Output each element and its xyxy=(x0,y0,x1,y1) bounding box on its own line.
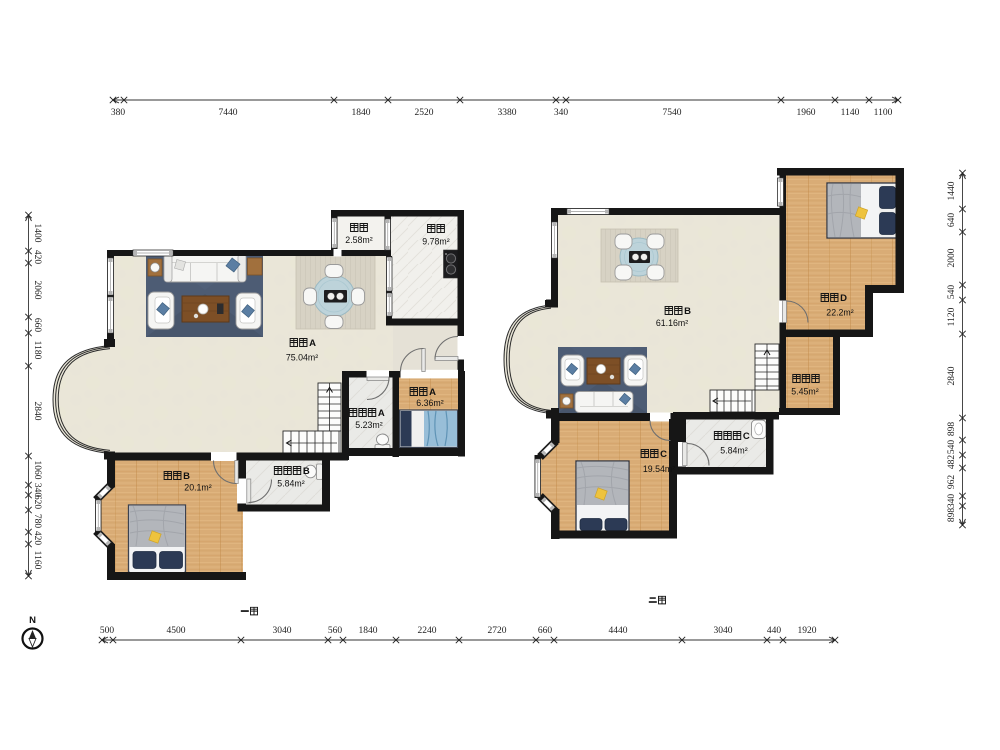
svg-text:420: 420 xyxy=(32,250,42,265)
svg-text:898: 898 xyxy=(947,508,957,523)
svg-text:482: 482 xyxy=(947,455,957,470)
svg-text:75.04m²: 75.04m² xyxy=(286,353,318,363)
svg-text:2720: 2720 xyxy=(488,626,507,636)
svg-text:340: 340 xyxy=(947,494,957,509)
svg-text:1960: 1960 xyxy=(797,108,816,118)
svg-text:6.36m²: 6.36m² xyxy=(416,398,443,408)
svg-text:61.16m²: 61.16m² xyxy=(656,318,688,328)
svg-text:1920: 1920 xyxy=(798,626,817,636)
svg-text:A: A xyxy=(309,338,316,349)
svg-text:3380: 3380 xyxy=(498,108,517,118)
svg-text:D: D xyxy=(840,293,847,304)
svg-text:4500: 4500 xyxy=(167,626,186,636)
svg-text:5.23m²: 5.23m² xyxy=(355,420,382,430)
svg-text:420: 420 xyxy=(32,531,42,546)
svg-text:500: 500 xyxy=(100,626,115,636)
svg-text:1840: 1840 xyxy=(359,626,378,636)
svg-text:22.2m²: 22.2m² xyxy=(826,308,853,318)
svg-text:1140: 1140 xyxy=(841,108,860,118)
svg-text:540: 540 xyxy=(947,440,957,455)
svg-text:19.54m²: 19.54m² xyxy=(643,464,675,474)
svg-text:2.58m²: 2.58m² xyxy=(345,235,372,245)
svg-text:A: A xyxy=(378,408,385,419)
svg-text:N: N xyxy=(29,615,36,626)
svg-text:340: 340 xyxy=(554,108,569,118)
svg-text:660: 660 xyxy=(32,318,42,333)
svg-text:560: 560 xyxy=(328,626,343,636)
svg-text:7440: 7440 xyxy=(219,108,238,118)
svg-text:1440: 1440 xyxy=(947,181,957,200)
svg-text:1120: 1120 xyxy=(947,307,957,326)
svg-text:B: B xyxy=(183,471,190,482)
svg-text:1160: 1160 xyxy=(32,551,42,570)
svg-text:B: B xyxy=(684,306,691,317)
svg-text:540: 540 xyxy=(947,285,957,300)
svg-text:3040: 3040 xyxy=(714,626,733,636)
svg-text:3040: 3040 xyxy=(273,626,292,636)
svg-text:5.84m²: 5.84m² xyxy=(720,446,747,456)
svg-text:660: 660 xyxy=(538,626,553,636)
svg-text:B: B xyxy=(303,466,310,477)
svg-text:2240: 2240 xyxy=(418,626,437,636)
svg-text:620: 620 xyxy=(32,495,42,510)
svg-text:2060: 2060 xyxy=(32,281,42,300)
svg-text:1180: 1180 xyxy=(32,341,42,360)
svg-text:C: C xyxy=(660,449,667,460)
svg-text:440: 440 xyxy=(767,626,782,636)
svg-text:20.1m²: 20.1m² xyxy=(184,483,211,493)
svg-text:5.45m²: 5.45m² xyxy=(791,387,818,397)
svg-text:9.78m²: 9.78m² xyxy=(422,237,449,247)
svg-text:5.84m²: 5.84m² xyxy=(277,479,304,489)
svg-text:898: 898 xyxy=(947,422,957,437)
svg-text:1840: 1840 xyxy=(352,108,371,118)
svg-text:7540: 7540 xyxy=(663,108,682,118)
svg-text:C: C xyxy=(743,431,750,442)
svg-text:A: A xyxy=(429,387,436,398)
svg-text:780: 780 xyxy=(32,514,42,529)
svg-text:2520: 2520 xyxy=(415,108,434,118)
svg-text:1060: 1060 xyxy=(32,461,42,480)
svg-text:1100: 1100 xyxy=(874,108,893,118)
svg-text:640: 640 xyxy=(947,213,957,228)
svg-text:380: 380 xyxy=(111,108,126,118)
svg-text:4440: 4440 xyxy=(609,626,628,636)
svg-text:1400: 1400 xyxy=(32,224,42,243)
svg-text:2840: 2840 xyxy=(32,402,42,421)
svg-text:962: 962 xyxy=(947,475,957,490)
svg-text:2840: 2840 xyxy=(947,366,957,385)
svg-text:2000: 2000 xyxy=(947,248,957,267)
